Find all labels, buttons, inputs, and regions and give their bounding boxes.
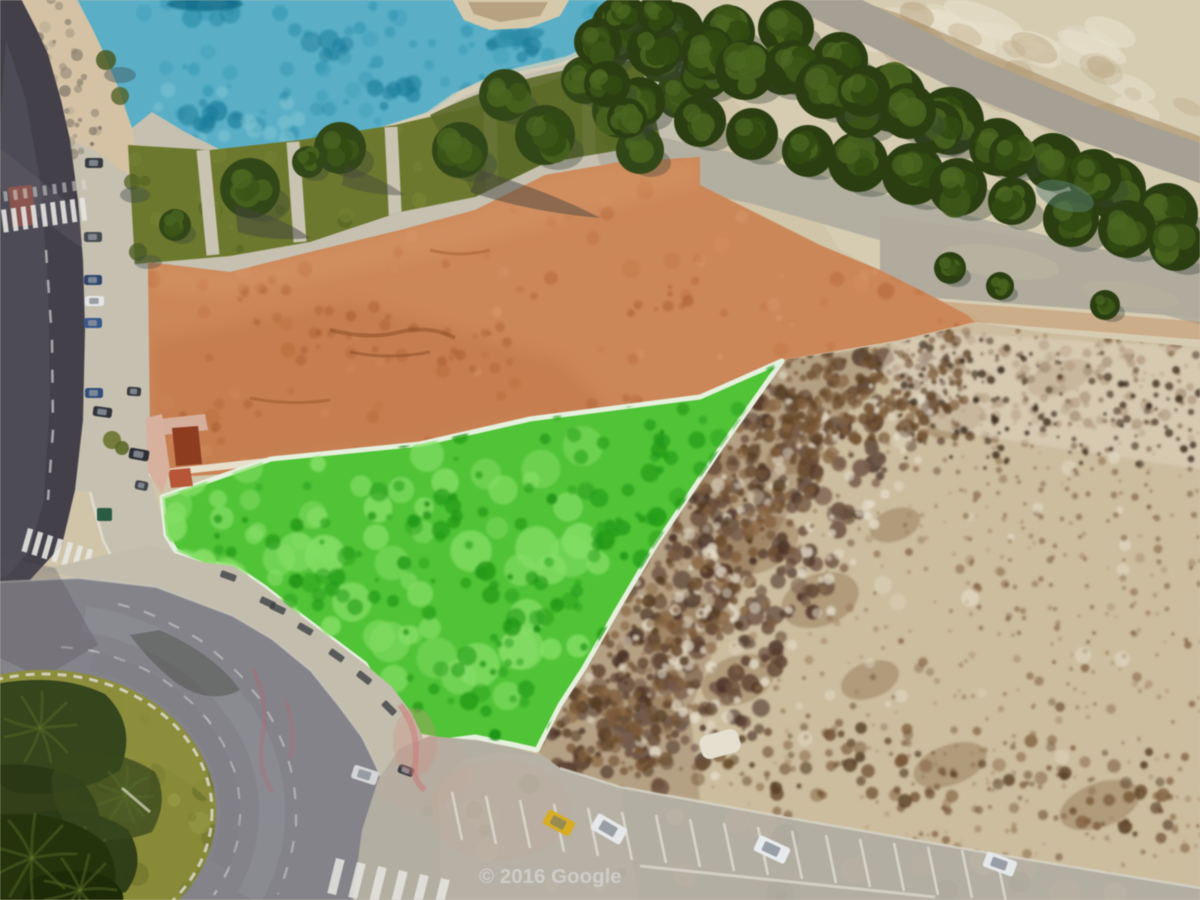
svg-text:© 2016 Google: © 2016 Google [479,865,622,888]
